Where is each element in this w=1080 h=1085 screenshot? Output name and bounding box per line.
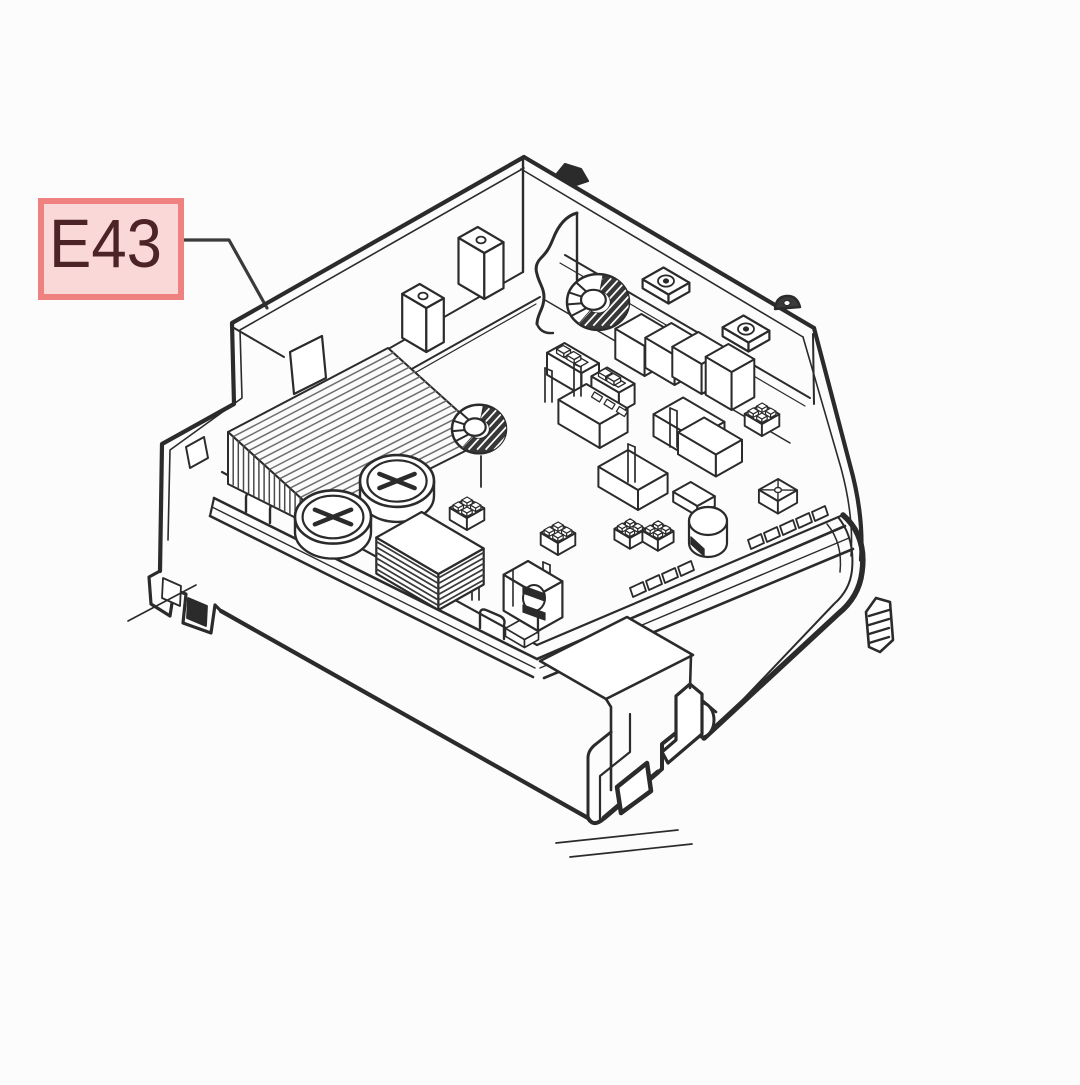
svg-text:E43: E43 xyxy=(49,205,162,282)
